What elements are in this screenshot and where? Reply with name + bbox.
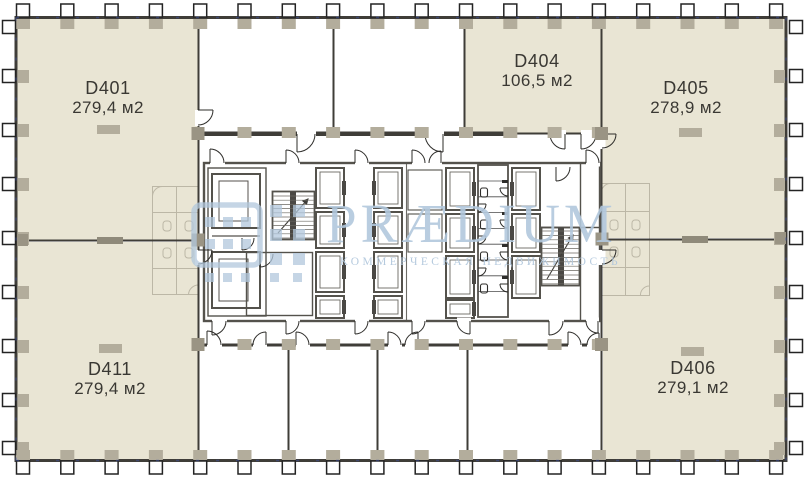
unit-label-d404[interactable]: D404 106,5 м2 <box>501 52 573 90</box>
unit-label-d405[interactable]: D405 278,9 м2 <box>650 79 722 117</box>
unit-area: 278,9 м2 <box>650 98 722 117</box>
unit-label-d411[interactable]: D411 279,4 м2 <box>74 360 146 398</box>
floor-plan-drawing <box>0 0 805 478</box>
unit-label-d406[interactable]: D406 279,1 м2 <box>657 359 729 397</box>
unit-area: 106,5 м2 <box>501 71 573 90</box>
unit-id: D406 <box>657 359 729 378</box>
unit-area: 279,1 м2 <box>657 378 729 397</box>
unit-label-d401[interactable]: D401 279,4 м2 <box>72 79 144 117</box>
unit-id: D401 <box>72 79 144 98</box>
door-openings <box>195 110 606 349</box>
unit-id: D411 <box>74 360 146 379</box>
unit-id: D405 <box>650 79 722 98</box>
unit-id: D404 <box>501 52 573 71</box>
unit-area: 279,4 м2 <box>72 98 144 117</box>
core-details <box>274 168 580 318</box>
floor-plan-page: D401 279,4 м2 D404 106,5 м2 D405 278,9 м… <box>0 0 805 478</box>
unit-area: 279,4 м2 <box>74 379 146 398</box>
